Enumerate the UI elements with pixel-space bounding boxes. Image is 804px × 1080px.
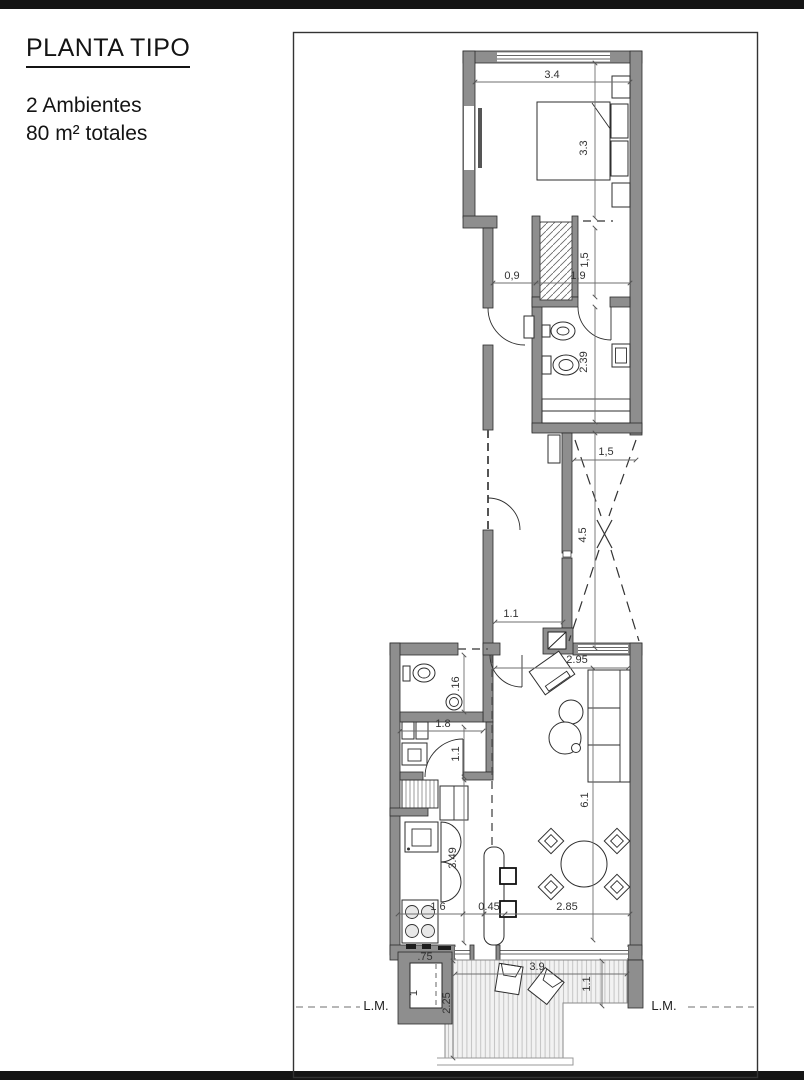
dimension-label: 2.39: [578, 351, 590, 372]
laundry: [402, 722, 428, 765]
dimension-label: 1.1: [503, 608, 518, 620]
nightstand: [612, 183, 630, 207]
bidet: [542, 322, 575, 340]
lounge-chair: [495, 963, 523, 994]
sofa: [588, 670, 630, 782]
door-swing: [490, 655, 522, 687]
dimension-label: 1.6: [430, 901, 445, 913]
island-counter: [484, 847, 504, 945]
dimension-label: 1,5: [579, 252, 591, 267]
bar-stool: [500, 868, 516, 884]
dimension-label: 3.3: [578, 140, 590, 155]
dimension-label: 4.5: [577, 527, 589, 542]
washing-machine: [402, 743, 427, 765]
dining-chair: [538, 874, 563, 899]
corridor-cabinet: [548, 435, 560, 463]
dimension-label: 0.45: [478, 901, 499, 913]
deck-floor: [445, 960, 627, 1058]
toilette-wc: [403, 664, 435, 682]
door-swing: [488, 308, 525, 345]
dimension-label: 1.1: [450, 746, 462, 761]
dimension-label: 3.49: [447, 847, 459, 868]
dimension-label: 1: [408, 990, 420, 996]
bar-stool: [500, 901, 516, 917]
column: [543, 628, 573, 654]
dimension-label: 2.85: [556, 901, 577, 913]
windows: [455, 53, 628, 961]
municipal-line-label: L.M.: [651, 998, 676, 1013]
dimension-label: 6.1: [579, 792, 591, 807]
dimension-label: 3.4: [544, 69, 559, 81]
dimension-label: 3.9: [529, 961, 544, 973]
fridge: [402, 780, 438, 808]
wardrobe: [524, 222, 572, 338]
dimension-label: 2.25: [441, 992, 453, 1013]
dimension-label: 1,5: [598, 446, 613, 458]
toilette-sink: [446, 694, 462, 710]
dining-table: [561, 841, 607, 887]
balcony: [398, 952, 627, 1065]
bedroom-top-window: [497, 53, 610, 62]
municipal-line-label: L.M.: [363, 998, 388, 1013]
floor-plan-page: PLANTA TIPO 2 Ambientes 80 m² totales: [0, 0, 804, 1080]
dimension-label: 2.95: [566, 654, 587, 666]
living-high-window: [578, 645, 628, 653]
dimensions: [296, 63, 754, 1058]
drawing-sheet-border: [294, 33, 758, 1078]
bathroom-sink: [612, 344, 630, 367]
living-room: [529, 651, 630, 900]
dimension-label: 1.1: [581, 976, 593, 991]
dining-chair: [538, 828, 563, 853]
shaft-wall-vent: [563, 551, 571, 557]
shower: [542, 399, 630, 423]
door-swing: [578, 307, 611, 340]
balcony-door-opening: [470, 945, 500, 960]
dining-chair: [604, 828, 629, 853]
laundry-cabinet: [402, 722, 414, 739]
bedroom-side-window: [464, 106, 482, 170]
wall-niche: [524, 316, 534, 338]
nightstand: [612, 76, 630, 98]
door-swing: [488, 498, 520, 530]
deck-step: [437, 1058, 573, 1065]
dimension-label: .75: [417, 951, 432, 963]
laundry-cabinet: [416, 722, 428, 739]
oven-stack: [405, 822, 438, 852]
toilet: [542, 355, 579, 375]
dimension-label: .16: [450, 676, 462, 691]
dining-chair: [604, 874, 629, 899]
dimension-label: 1.8: [435, 718, 450, 730]
floor-plan-drawing: 3.4 3.3 0,9 1,9 1,5 2.39 1,5 4.5 1.1 2.9…: [0, 0, 804, 1080]
coffee-tables: [549, 700, 583, 754]
dimension-label: 1,9: [570, 270, 585, 282]
dimension-label: 0,9: [504, 270, 519, 282]
